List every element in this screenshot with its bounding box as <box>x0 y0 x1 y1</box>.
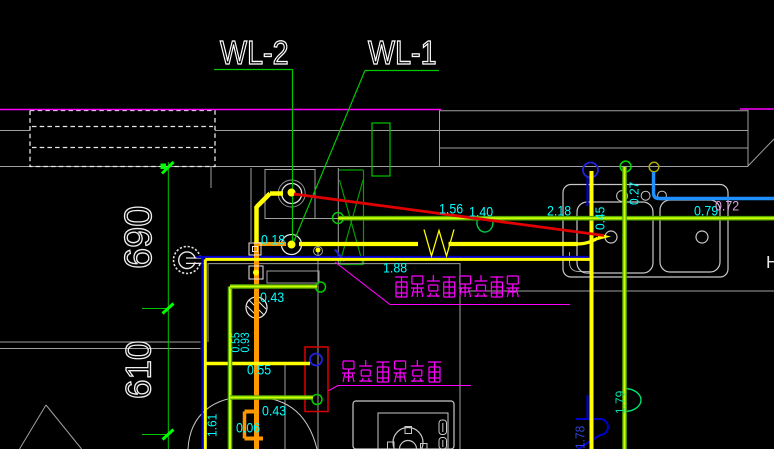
svg-text:WL-2: WL-2 <box>220 34 289 71</box>
svg-text:H: H <box>766 252 774 272</box>
svg-text:0.27: 0.27 <box>627 182 642 205</box>
svg-text:0.72: 0.72 <box>715 198 739 214</box>
svg-text:0.06: 0.06 <box>236 420 260 436</box>
svg-text:0.55: 0.55 <box>247 362 271 378</box>
svg-text:1.88: 1.88 <box>383 260 407 276</box>
svg-text:0.43: 0.43 <box>262 403 286 419</box>
svg-text:1.40: 1.40 <box>469 204 493 220</box>
svg-text:0.45: 0.45 <box>593 207 608 230</box>
svg-text:0.18: 0.18 <box>261 232 285 248</box>
svg-text:2.18: 2.18 <box>547 203 571 219</box>
svg-text:1.78: 1.78 <box>573 426 588 449</box>
svg-text:1.61: 1.61 <box>205 414 220 437</box>
svg-text:1.56: 1.56 <box>439 201 463 217</box>
svg-text:WL-1: WL-1 <box>368 34 437 71</box>
svg-text:0.93: 0.93 <box>240 332 253 352</box>
svg-text:690: 690 <box>118 206 160 269</box>
svg-text:1.79: 1.79 <box>613 391 628 414</box>
svg-text:610: 610 <box>120 341 159 399</box>
svg-text:0.43: 0.43 <box>260 290 284 306</box>
